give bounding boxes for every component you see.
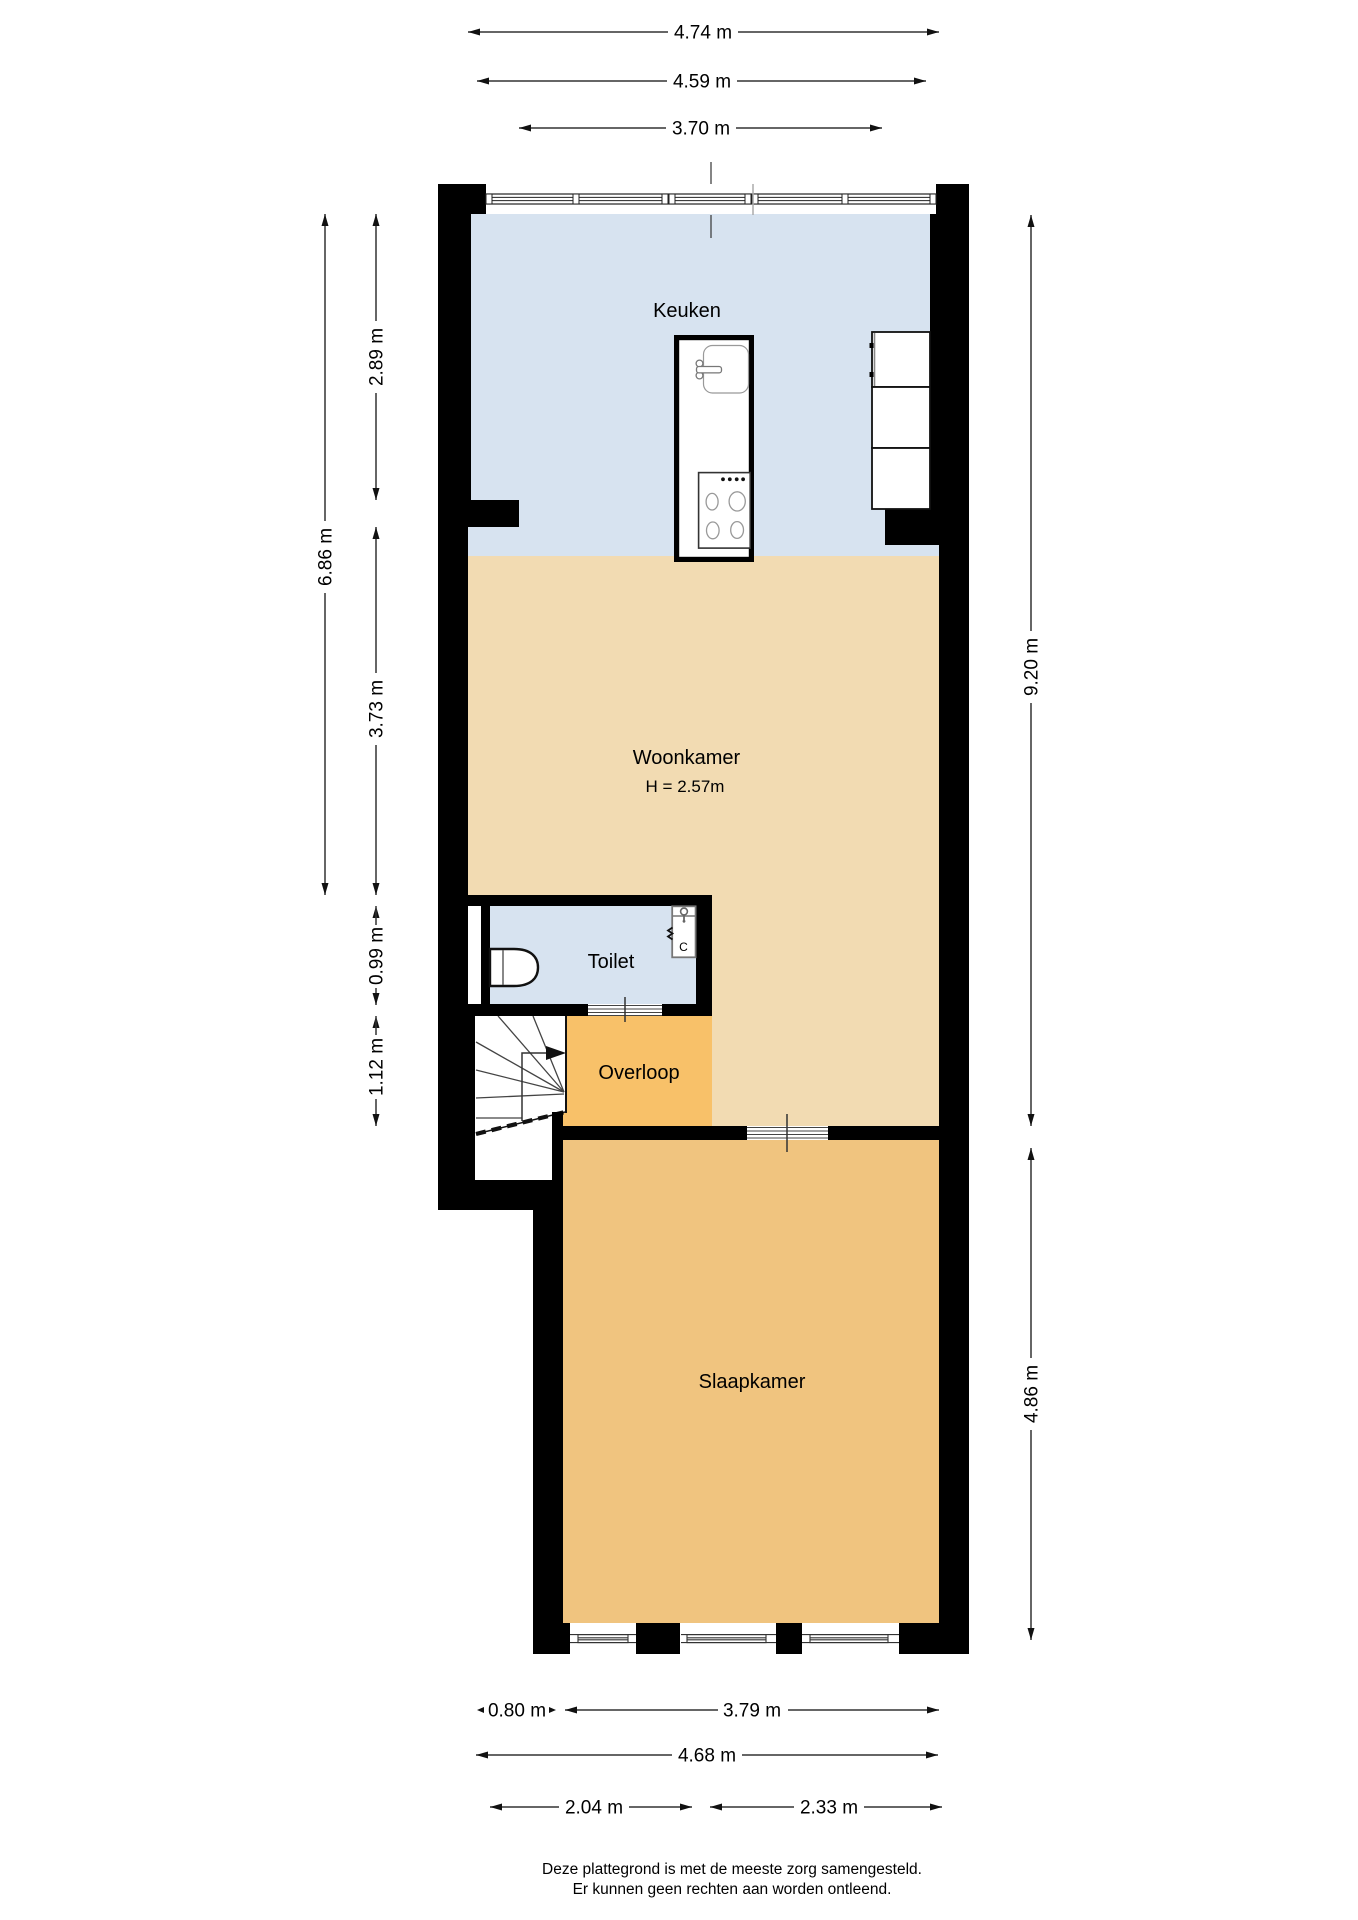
svg-text:Er kunnen geen rechten aan wor: Er kunnen geen rechten aan worden ontlee… [573,1881,892,1898]
svg-text:Overloop: Overloop [598,1062,679,1084]
svg-text:4.68 m: 4.68 m [678,1746,736,1767]
svg-text:9.20 m: 9.20 m [1022,638,1043,696]
svg-text:3.79 m: 3.79 m [723,1701,781,1722]
svg-text:0.80 m: 0.80 m [488,1701,546,1722]
svg-text:0.99 m: 0.99 m [367,927,388,985]
svg-text:6.86 m: 6.86 m [316,528,337,586]
svg-text:Keuken: Keuken [653,300,721,322]
svg-text:2.33 m: 2.33 m [800,1798,858,1819]
svg-text:1.12 m: 1.12 m [367,1038,388,1096]
svg-text:4.74 m: 4.74 m [674,23,732,44]
svg-text:Woonkamer: Woonkamer [633,747,741,769]
svg-text:2.04 m: 2.04 m [565,1798,623,1819]
svg-text:Slaapkamer: Slaapkamer [699,1371,806,1393]
svg-text:C: C [679,940,688,954]
svg-text:H = 2.57m: H = 2.57m [646,777,725,796]
svg-text:2.89 m: 2.89 m [367,328,388,386]
svg-text:Deze plattegrond is met de mee: Deze plattegrond is met de meeste zorg s… [542,1861,922,1878]
svg-text:Toilet: Toilet [588,951,635,973]
svg-text:3.70 m: 3.70 m [672,119,730,140]
svg-text:4.86 m: 4.86 m [1022,1365,1043,1423]
svg-text:3.73 m: 3.73 m [367,680,388,738]
svg-text:4.59 m: 4.59 m [673,72,731,93]
